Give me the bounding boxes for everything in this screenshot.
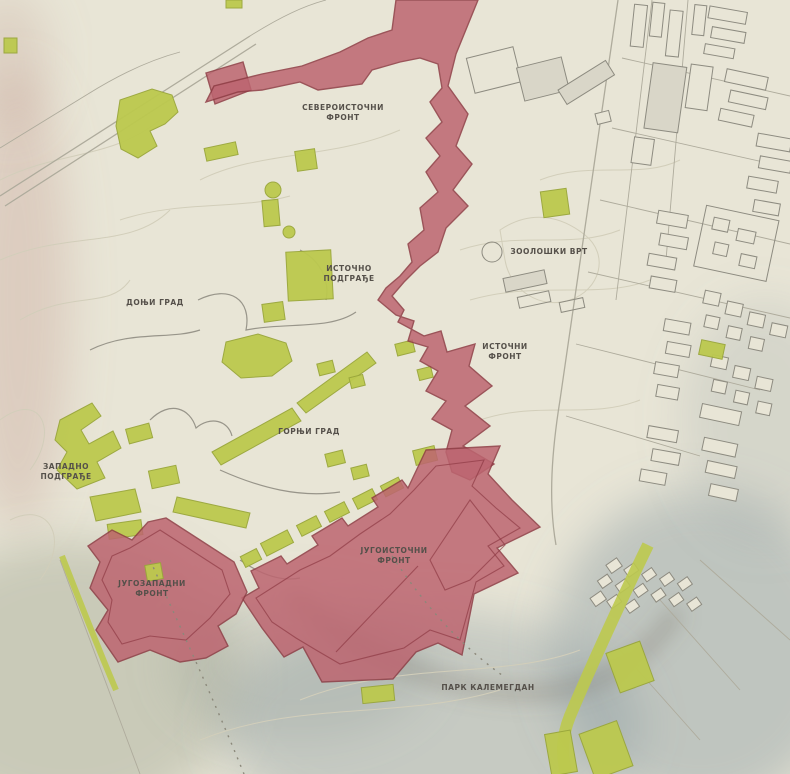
label-lower-town: ДОЊИ ГРАД — [126, 298, 184, 307]
green-area — [283, 226, 295, 238]
green-area — [262, 302, 285, 323]
label-southwest-front: ЈУГОЗАПАДНИ — [117, 579, 186, 588]
label-northeast-front-line2: ФРОНТ — [326, 113, 360, 122]
map-drawing: СЕВЕРОИСТОЧНИ ФРОНТ ИСТОЧНО ПОДГРАЂЕ ЗОО… — [0, 0, 790, 774]
green-area — [317, 360, 335, 376]
green-area — [4, 38, 17, 53]
label-east-front: ИСТОЧНИ — [482, 342, 527, 351]
green-area — [325, 450, 346, 467]
city-block — [639, 426, 684, 487]
northeast-east-front-area — [206, 0, 494, 480]
green-area — [295, 149, 318, 172]
label-east-suburb-line2: ПОДГРАЂЕ — [323, 274, 374, 283]
green-area — [173, 497, 250, 528]
city-block — [702, 6, 750, 60]
green-area — [260, 530, 293, 556]
green-area — [351, 464, 369, 480]
green-area — [90, 489, 141, 521]
green-area — [126, 423, 153, 444]
fortress-map: СЕВЕРОИСТОЧНИ ФРОНТ ИСТОЧНО ПОДГРАЂЕ ЗОО… — [0, 0, 790, 774]
green-area — [265, 182, 281, 198]
green-area — [204, 142, 238, 161]
label-southwest-front-line2: ФРОНТ — [135, 589, 169, 598]
label-east-suburb: ИСТОЧНО — [326, 264, 372, 273]
city-block — [743, 133, 790, 217]
city-block — [630, 0, 707, 60]
green-area — [148, 465, 179, 488]
green-area — [222, 334, 292, 378]
green-area — [417, 366, 433, 380]
green-area — [212, 408, 301, 465]
city-block — [716, 69, 772, 129]
label-zoo: ЗООЛОШКИ ВРТ — [510, 247, 588, 256]
label-southeast-front-line2: ФРОНТ — [377, 556, 411, 565]
green-area — [324, 502, 349, 523]
green-area — [116, 89, 178, 158]
label-southeast-front: ЈУГОИСТОЧНИ — [359, 546, 427, 555]
label-east-front-line2: ФРОНТ — [488, 352, 522, 361]
label-upper-town: ГОРЊИ ГРАД — [278, 427, 340, 436]
green-area — [540, 188, 569, 217]
label-west-suburb: ЗАПАДНО — [43, 462, 89, 471]
city-block — [643, 210, 692, 293]
green-area — [361, 684, 394, 703]
label-northeast-front: СЕВЕРОИСТОЧНИ — [302, 103, 384, 112]
city-block — [694, 205, 779, 281]
label-kalemegdan-park: ПАРК КАЛЕМЕГДАН — [441, 683, 534, 692]
green-area — [226, 0, 242, 8]
label-west-suburb-line2: ПОДГРАЂЕ — [40, 472, 91, 481]
green-area — [262, 199, 280, 226]
green-area — [240, 549, 261, 568]
